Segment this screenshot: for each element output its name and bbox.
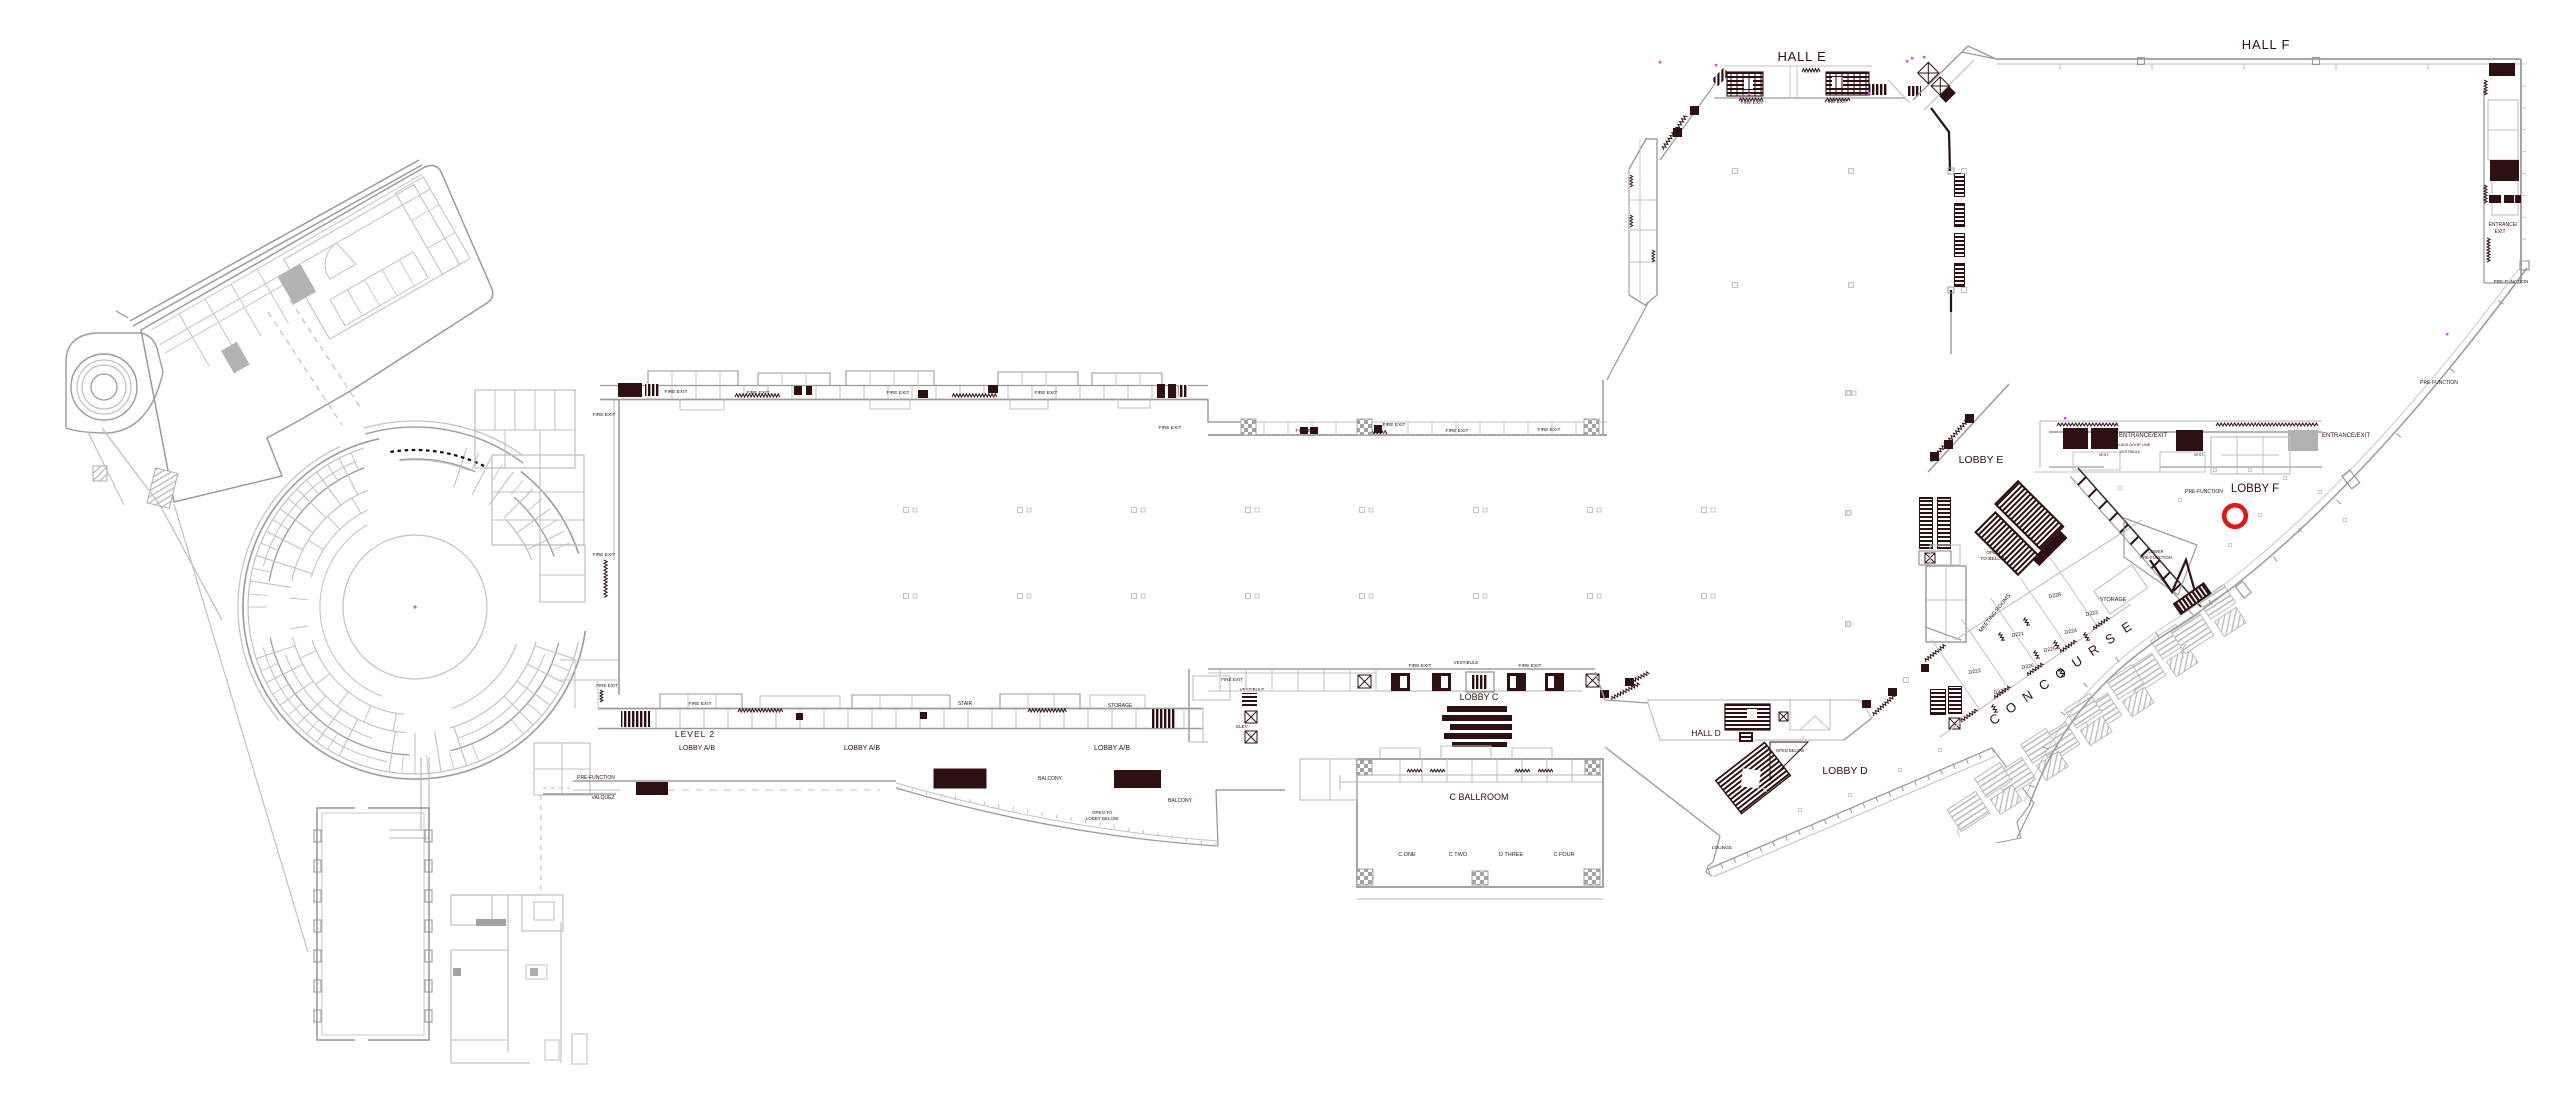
svg-text:LOBBY E: LOBBY E — [1959, 454, 2004, 466]
svg-text:C ONE: C ONE — [1398, 852, 1416, 858]
svg-text:PRE-FUNCTION: PRE-FUNCTION — [2140, 555, 2172, 560]
svg-text:LOBBY F: LOBBY F — [2231, 483, 2279, 495]
svg-text:FIRE EXIT: FIRE EXIT — [1446, 428, 1469, 434]
svg-text:LEVEL 2: LEVEL 2 — [675, 729, 715, 739]
svg-text:OPEN BELOW: OPEN BELOW — [1776, 748, 1804, 753]
svg-text:BALCONY: BALCONY — [1168, 798, 1193, 804]
svg-text:D THREE: D THREE — [1499, 852, 1523, 858]
svg-text:FIRE EXIT: FIRE EXIT — [1296, 428, 1319, 434]
svg-text:PRE-FUNCTION: PRE-FUNCTION — [2420, 380, 2458, 386]
svg-text:FIRE EXIT: FIRE EXIT — [593, 552, 616, 558]
svg-text:OPEN TO: OPEN TO — [1092, 810, 1113, 815]
svg-text:GLASS DOOR LINE: GLASS DOOR LINE — [2116, 443, 2151, 447]
svg-text:FIRE EXIT: FIRE EXIT — [596, 683, 618, 688]
svg-text:FIRE EXIT: FIRE EXIT — [1221, 677, 1243, 682]
svg-text:LOBBY A/B: LOBBY A/B — [1094, 745, 1130, 752]
svg-text:LOUNGE: LOUNGE — [1712, 845, 1732, 851]
svg-text:FIRE EXIT: FIRE EXIT — [1538, 427, 1561, 433]
svg-text:VEST.: VEST. — [2099, 453, 2110, 457]
svg-text:C BALLROOM: C BALLROOM — [1449, 792, 1508, 802]
svg-text:FIRE EXIT: FIRE EXIT — [1409, 663, 1432, 669]
svg-text:ENTRANCE/EXIT: ENTRANCE/EXIT — [2322, 433, 2370, 439]
svg-text:FIRE EXIT: FIRE EXIT — [887, 390, 910, 396]
svg-text:PRE-FUNCTION: PRE-FUNCTION — [2185, 489, 2223, 495]
svg-text:STAIR: STAIR — [958, 701, 973, 707]
svg-text:LOBBY A/B: LOBBY A/B — [844, 745, 880, 752]
svg-text:C TWO: C TWO — [1449, 852, 1468, 858]
svg-text:C FOUR: C FOUR — [1553, 852, 1574, 858]
svg-text:FIRE EXIT: FIRE EXIT — [1159, 425, 1182, 431]
svg-text:BALCONY: BALCONY — [1038, 776, 1063, 782]
svg-text:ENTRANCE/: ENTRANCE/ — [2489, 222, 2519, 228]
svg-text:VALQUEZ: VALQUEZ — [592, 795, 615, 801]
svg-text:LOWER: LOWER — [2148, 549, 2163, 554]
svg-text:HALL E: HALL E — [1777, 49, 1826, 64]
svg-text:PRE-FUNCTION: PRE-FUNCTION — [577, 775, 615, 781]
svg-text:FIRE EXIT: FIRE EXIT — [1035, 390, 1058, 396]
svg-text:FIRE EXIT: FIRE EXIT — [689, 701, 712, 707]
svg-text:EXIT: EXIT — [2494, 229, 2505, 235]
svg-text:VESTIBULE: VESTIBULE — [2120, 450, 2141, 454]
svg-text:HALL D: HALL D — [1691, 728, 1720, 738]
svg-text:LOBBY BELOW: LOBBY BELOW — [1086, 816, 1119, 821]
svg-text:VEST.: VEST. — [2194, 453, 2205, 457]
svg-text:STORAGE: STORAGE — [1108, 703, 1133, 709]
svg-text:FIRE EXIT: FIRE EXIT — [1519, 663, 1542, 669]
svg-text:ENTRANCE/EXIT: ENTRANCE/EXIT — [2119, 433, 2167, 439]
svg-text:VESTIBULE: VESTIBULE — [1454, 660, 1479, 665]
svg-text:FIRE EXIT: FIRE EXIT — [665, 389, 688, 395]
svg-text:FIRE EXIT: FIRE EXIT — [593, 412, 616, 418]
svg-text:ELEV: ELEV — [1236, 724, 1248, 729]
svg-text:FIRE EXIT: FIRE EXIT — [1383, 422, 1406, 428]
svg-text:LOBBY C: LOBBY C — [1460, 692, 1499, 702]
svg-text:LOBBY A/B: LOBBY A/B — [679, 745, 715, 752]
svg-text:TO BELOW: TO BELOW — [1980, 556, 2006, 562]
svg-text:HALL F: HALL F — [2242, 37, 2290, 52]
svg-text:LOBBY D: LOBBY D — [1822, 765, 1868, 777]
svg-text:STORAGE: STORAGE — [2100, 597, 2127, 603]
svg-text:OPEN: OPEN — [1986, 550, 2000, 556]
